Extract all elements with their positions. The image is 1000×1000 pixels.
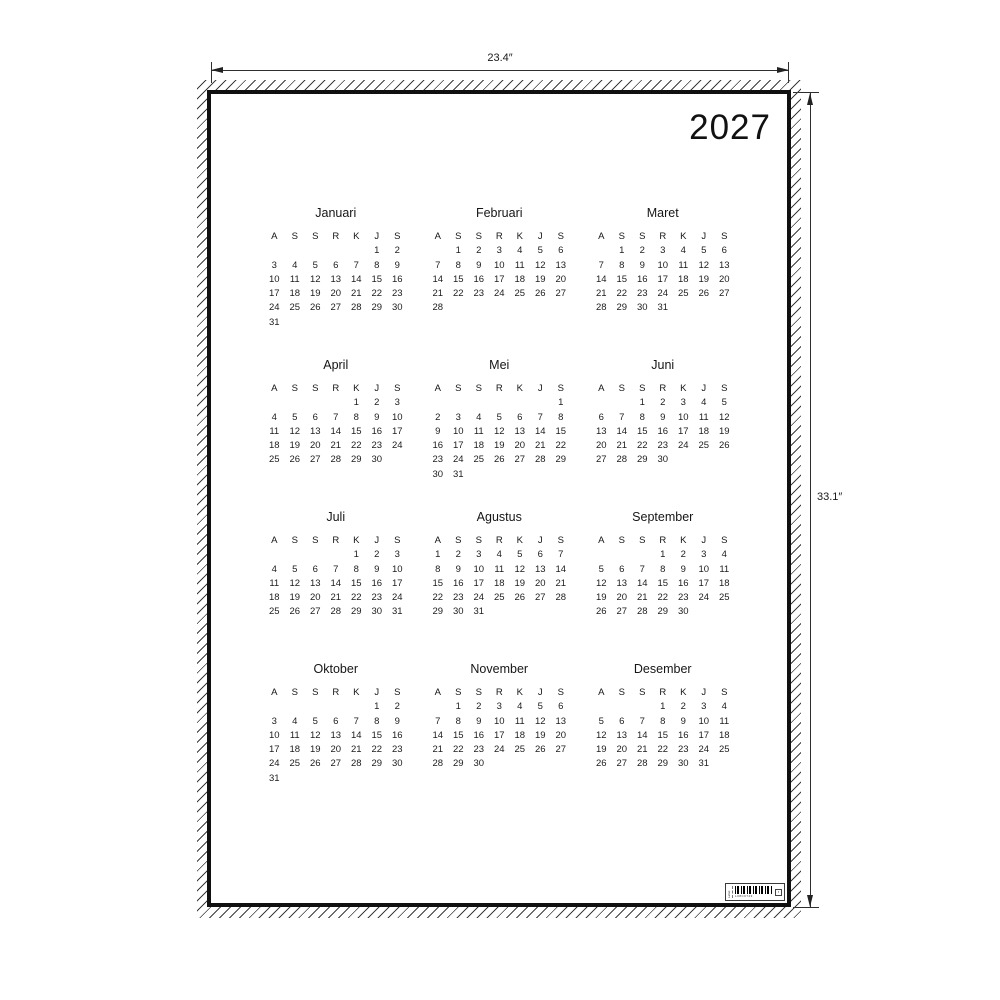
day-cell: 13 [326,729,347,743]
day-cell: 4 [285,259,306,273]
day-cell: 26 [530,743,551,757]
month-table: ASSRKJS123456789101112131415161718192021… [428,686,572,772]
day-cell-empty [428,700,449,714]
day-header: K [673,382,694,396]
calendar-poster: 2027 JanuariASSRKJS123456789101112131415… [207,90,791,907]
day-cell-empty [489,396,510,410]
day-cell: 15 [346,425,367,439]
day-cell: 12 [285,425,306,439]
day-header: S [387,686,408,700]
day-cell-empty [714,453,735,467]
day-cell-empty [305,548,326,562]
day-cell: 5 [510,548,531,562]
day-cell: 29 [551,453,572,467]
day-cell-empty [367,316,388,330]
day-cell: 27 [510,453,531,467]
day-cell: 20 [305,439,326,453]
day-cell: 1 [346,396,367,410]
day-cell: 16 [448,577,469,591]
day-cell: 9 [673,563,694,577]
day-cell: 19 [285,591,306,605]
day-cell: 14 [346,729,367,743]
day-header: K [510,686,531,700]
day-cell: 2 [469,700,490,714]
day-cell: 8 [346,563,367,577]
day-header: S [612,686,633,700]
day-cell-empty [387,772,408,786]
day-cell: 26 [591,605,612,619]
day-cell-empty [612,700,633,714]
day-cell: 10 [264,729,285,743]
day-cell: 12 [591,577,612,591]
day-cell: 21 [326,439,347,453]
day-cell-empty [694,453,715,467]
day-cell-empty [346,244,367,258]
day-cell: 5 [591,563,612,577]
day-cell: 11 [714,715,735,729]
day-cell: 7 [530,411,551,425]
day-cell: 3 [387,548,408,562]
day-cell-empty [448,301,469,315]
day-cell-empty [305,396,326,410]
day-cell: 11 [694,411,715,425]
day-cell: 2 [653,396,674,410]
day-cell: 9 [367,563,388,577]
day-cell: 15 [428,577,449,591]
day-cell: 18 [469,439,490,453]
day-cell: 24 [387,591,408,605]
day-cell: 21 [591,287,612,301]
day-cell: 23 [673,743,694,757]
day-cell-empty [326,244,347,258]
day-cell: 4 [264,563,285,577]
day-cell: 16 [387,273,408,287]
day-cell: 1 [346,548,367,562]
day-cell: 24 [489,743,510,757]
day-cell: 15 [346,577,367,591]
day-cell: 28 [551,591,572,605]
day-cell: 10 [489,259,510,273]
day-cell: 18 [264,439,285,453]
day-header: A [591,382,612,396]
day-cell: 13 [551,715,572,729]
day-cell: 24 [469,591,490,605]
day-header: S [612,534,633,548]
day-header: S [612,382,633,396]
day-cell: 7 [428,715,449,729]
day-cell: 25 [714,743,735,757]
day-cell: 11 [714,563,735,577]
day-cell: 10 [694,715,715,729]
day-cell: 12 [714,411,735,425]
day-cell-empty [469,396,490,410]
day-cell-empty [264,396,285,410]
day-cell-empty [489,757,510,771]
day-header: R [326,230,347,244]
day-cell-empty [305,316,326,330]
day-cell-empty [448,396,469,410]
day-cell: 20 [530,577,551,591]
day-cell: 16 [387,729,408,743]
day-cell-empty [285,316,306,330]
day-cell: 17 [489,273,510,287]
day-cell: 13 [326,273,347,287]
day-cell: 29 [632,453,653,467]
day-cell: 5 [489,411,510,425]
day-header: S [714,534,735,548]
day-header: J [530,230,551,244]
day-cell: 30 [632,301,653,315]
day-cell: 25 [469,453,490,467]
day-cell: 12 [489,425,510,439]
day-cell: 28 [428,757,449,771]
day-cell: 2 [428,411,449,425]
day-cell: 2 [367,396,388,410]
day-cell: 16 [632,273,653,287]
day-cell-empty [305,700,326,714]
day-cell-empty [673,301,694,315]
width-dimension-line [211,70,789,71]
day-cell-empty [387,453,408,467]
day-cell: 18 [285,287,306,301]
day-cell: 10 [694,563,715,577]
day-cell: 16 [673,577,694,591]
month-table: ASSRKJS123456789101112131415161718192021… [591,534,735,620]
day-cell-empty [694,301,715,315]
day-header: K [510,230,531,244]
day-cell: 19 [694,273,715,287]
day-cell: 5 [714,396,735,410]
barcode-stripes-icon [735,886,773,894]
day-cell: 7 [428,259,449,273]
day-cell: 14 [612,425,633,439]
day-cell: 2 [673,548,694,562]
day-header: R [653,686,674,700]
day-header: R [489,382,510,396]
day-cell: 4 [489,548,510,562]
day-cell: 28 [346,301,367,315]
day-header: K [510,534,531,548]
day-cell: 27 [591,453,612,467]
day-cell: 22 [551,439,572,453]
day-header: S [387,230,408,244]
day-cell: 8 [612,259,633,273]
arrow-left-icon [211,67,223,73]
day-cell: 6 [530,548,551,562]
day-header: S [305,534,326,548]
day-cell: 18 [714,729,735,743]
day-cell: 14 [346,273,367,287]
day-cell: 25 [510,287,531,301]
day-cell-empty [673,453,694,467]
day-cell: 18 [510,273,531,287]
day-cell-empty [530,605,551,619]
day-cell: 14 [326,425,347,439]
day-cell-empty [285,772,306,786]
day-cell: 23 [387,743,408,757]
day-cell: 18 [489,577,510,591]
month-mei: MeiASSRKJS123456789101112131415161718192… [428,358,572,510]
day-cell: 13 [530,563,551,577]
arrow-down-icon [807,895,813,907]
month-title: Agustus [428,510,572,524]
day-cell: 27 [551,743,572,757]
day-cell: 2 [469,244,490,258]
day-cell-empty [469,301,490,315]
day-cell: 15 [612,273,633,287]
day-cell: 11 [510,715,531,729]
day-cell: 15 [653,729,674,743]
day-cell-empty [326,772,347,786]
day-cell-empty [305,244,326,258]
day-cell: 20 [551,273,572,287]
day-header: S [551,230,572,244]
day-header: S [387,382,408,396]
day-header: S [305,686,326,700]
day-cell: 2 [367,548,388,562]
day-cell: 22 [448,743,469,757]
day-cell: 27 [714,287,735,301]
day-cell-empty [551,468,572,482]
day-cell-empty [591,548,612,562]
day-cell: 1 [448,244,469,258]
day-header: S [632,230,653,244]
day-cell: 11 [264,425,285,439]
day-cell: 17 [264,287,285,301]
day-cell: 17 [264,743,285,757]
day-cell: 23 [448,591,469,605]
day-cell: 11 [285,729,306,743]
month-table: ASSRKJS123456789101112131415161718192021… [264,230,408,330]
day-header: S [714,230,735,244]
day-cell: 19 [714,425,735,439]
day-cell: 1 [367,700,388,714]
month-desember: DesemberASSRKJS1234567891011121314151617… [591,662,735,814]
day-cell: 3 [469,548,490,562]
day-cell: 3 [264,715,285,729]
day-cell: 16 [469,729,490,743]
day-cell-empty [551,605,572,619]
day-cell: 5 [530,244,551,258]
day-cell: 8 [428,563,449,577]
day-cell-empty [612,548,633,562]
day-cell: 9 [469,715,490,729]
day-cell: 29 [346,605,367,619]
day-cell: 11 [489,563,510,577]
day-cell: 28 [326,453,347,467]
day-header: J [530,534,551,548]
day-header: R [326,382,347,396]
barcode-box-icon: ▪ [775,889,782,896]
day-header: R [489,534,510,548]
months-grid: JanuariASSRKJS12345678910111213141516171… [264,206,735,814]
day-cell: 3 [673,396,694,410]
day-cell: 4 [714,700,735,714]
day-header: J [694,382,715,396]
day-cell: 22 [632,439,653,453]
day-cell: 12 [530,259,551,273]
day-cell: 23 [673,591,694,605]
month-title: Mei [428,358,572,372]
day-cell: 12 [285,577,306,591]
day-cell-empty [632,548,653,562]
day-header: R [326,686,347,700]
day-cell-empty [510,396,531,410]
month-februari: FebruariASSRKJS1234567891011121314151617… [428,206,572,358]
day-cell: 24 [673,439,694,453]
day-cell: 13 [305,425,326,439]
day-cell: 20 [326,287,347,301]
day-cell: 18 [510,729,531,743]
day-cell: 22 [428,591,449,605]
day-cell: 28 [346,757,367,771]
day-header: K [673,534,694,548]
day-header: S [387,534,408,548]
day-cell: 8 [367,715,388,729]
day-cell: 7 [346,715,367,729]
day-cell: 14 [428,729,449,743]
day-cell: 25 [510,743,531,757]
day-cell: 19 [305,743,326,757]
day-cell: 2 [387,700,408,714]
day-cell-empty [428,244,449,258]
day-header: A [264,382,285,396]
day-cell: 20 [305,591,326,605]
day-cell-empty [714,605,735,619]
day-cell: 4 [714,548,735,562]
day-header: S [285,534,306,548]
day-cell: 29 [448,757,469,771]
day-cell: 27 [530,591,551,605]
day-header: S [448,534,469,548]
day-cell-empty [530,757,551,771]
day-cell: 8 [632,411,653,425]
day-cell: 22 [612,287,633,301]
day-header: J [530,686,551,700]
day-cell: 20 [612,743,633,757]
day-header: R [653,382,674,396]
day-cell: 6 [326,715,347,729]
day-header: S [551,534,572,548]
day-cell: 25 [285,301,306,315]
day-cell: 1 [448,700,469,714]
day-cell: 21 [428,743,449,757]
day-header: S [448,686,469,700]
day-cell: 7 [551,548,572,562]
day-cell: 27 [612,757,633,771]
day-cell: 29 [367,301,388,315]
day-cell: 13 [305,577,326,591]
day-cell: 27 [326,757,347,771]
day-cell: 21 [530,439,551,453]
day-cell: 23 [367,439,388,453]
day-cell: 13 [510,425,531,439]
day-cell: 14 [591,273,612,287]
day-cell: 8 [346,411,367,425]
day-cell: 6 [612,563,633,577]
day-cell: 22 [653,591,674,605]
day-cell: 20 [326,743,347,757]
day-header: S [469,230,490,244]
day-cell: 3 [694,700,715,714]
day-cell: 26 [591,757,612,771]
day-cell: 29 [653,605,674,619]
month-title: Oktober [264,662,408,676]
day-header: A [428,686,449,700]
day-cell: 13 [551,259,572,273]
day-cell: 3 [387,396,408,410]
day-cell: 19 [489,439,510,453]
day-cell-empty [489,301,510,315]
day-cell: 27 [326,301,347,315]
month-table: ASSRKJS123456789101112131415161718192021… [591,230,735,316]
month-april: AprilASSRKJS1234567891011121314151617181… [264,358,408,510]
day-header: R [653,230,674,244]
day-cell: 29 [346,453,367,467]
day-cell-empty [510,605,531,619]
day-cell: 14 [326,577,347,591]
month-juli: JuliASSRKJS12345678910111213141516171819… [264,510,408,662]
day-cell: 9 [632,259,653,273]
day-header: R [489,230,510,244]
day-header: S [632,686,653,700]
day-cell: 17 [489,729,510,743]
day-cell: 9 [673,715,694,729]
month-table: ASSRKJS123456789101112131415161718192021… [591,382,735,468]
day-cell: 15 [448,273,469,287]
day-cell-empty [326,700,347,714]
day-cell: 25 [264,453,285,467]
month-title: April [264,358,408,372]
day-cell: 21 [612,439,633,453]
day-cell: 28 [612,453,633,467]
day-cell-empty [530,468,551,482]
day-cell: 7 [591,259,612,273]
day-cell: 10 [653,259,674,273]
day-cell: 26 [510,591,531,605]
month-table: ASSRKJS123456789101112131415161718192021… [428,382,572,482]
day-cell: 3 [448,411,469,425]
day-cell: 4 [694,396,715,410]
day-cell: 26 [305,757,326,771]
day-cell: 14 [428,273,449,287]
day-header: S [285,230,306,244]
day-cell: 22 [367,287,388,301]
day-cell: 30 [387,301,408,315]
barcode-code-text: L08C0743 [735,894,773,898]
day-cell: 13 [612,729,633,743]
day-cell: 27 [612,605,633,619]
day-cell: 13 [714,259,735,273]
day-cell: 30 [448,605,469,619]
day-cell: 6 [714,244,735,258]
day-cell-empty [346,700,367,714]
day-cell: 22 [653,743,674,757]
day-cell: 4 [285,715,306,729]
day-cell: 8 [448,259,469,273]
day-header: K [346,230,367,244]
day-cell: 5 [305,715,326,729]
day-cell: 10 [469,563,490,577]
day-cell: 19 [530,273,551,287]
day-cell: 6 [612,715,633,729]
day-cell: 23 [387,287,408,301]
day-cell: 11 [285,273,306,287]
day-cell: 7 [612,411,633,425]
day-cell: 10 [489,715,510,729]
day-cell: 29 [367,757,388,771]
day-cell: 19 [510,577,531,591]
